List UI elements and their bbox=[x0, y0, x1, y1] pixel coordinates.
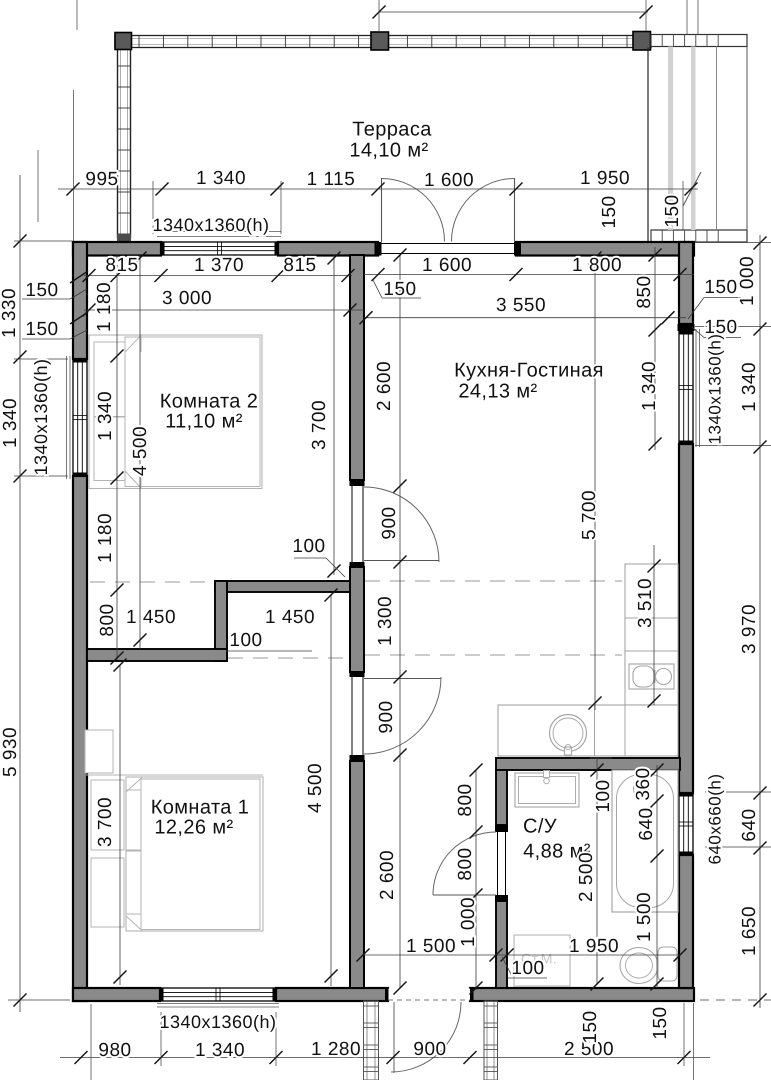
svg-text:1 300: 1 300 bbox=[375, 596, 396, 646]
svg-text:150: 150 bbox=[383, 279, 416, 300]
svg-text:850: 850 bbox=[634, 275, 655, 308]
svg-text:150: 150 bbox=[25, 280, 58, 301]
svg-text:2 600: 2 600 bbox=[377, 850, 398, 900]
svg-text:1 340: 1 340 bbox=[639, 361, 660, 411]
svg-text:1 600: 1 600 bbox=[424, 170, 474, 191]
svg-text:150: 150 bbox=[580, 1010, 601, 1043]
svg-text:3 000: 3 000 bbox=[162, 288, 212, 309]
svg-text:3 700: 3 700 bbox=[309, 400, 330, 450]
svg-text:150: 150 bbox=[599, 195, 620, 228]
svg-text:800: 800 bbox=[455, 847, 476, 880]
svg-text:1340x1360(h): 1340x1360(h) bbox=[152, 215, 269, 235]
svg-text:14,10 м²: 14,10 м² bbox=[349, 139, 428, 161]
svg-text:1 800: 1 800 bbox=[572, 255, 622, 276]
svg-text:3 970: 3 970 bbox=[739, 604, 760, 654]
svg-text:1 500: 1 500 bbox=[634, 892, 655, 942]
svg-text:1 280: 1 280 bbox=[311, 1039, 361, 1060]
svg-text:1 340: 1 340 bbox=[195, 1040, 245, 1061]
svg-text:С/У: С/У bbox=[523, 815, 557, 837]
svg-text:12,26 м²: 12,26 м² bbox=[154, 816, 233, 838]
svg-text:150: 150 bbox=[704, 277, 737, 298]
svg-text:900: 900 bbox=[376, 700, 397, 733]
svg-text:100: 100 bbox=[229, 630, 262, 651]
svg-text:3 550: 3 550 bbox=[496, 295, 546, 316]
svg-text:1 950: 1 950 bbox=[580, 168, 630, 189]
svg-text:3 510: 3 510 bbox=[635, 578, 656, 628]
svg-text:815: 815 bbox=[105, 255, 138, 276]
svg-text:4 500: 4 500 bbox=[305, 763, 326, 813]
svg-text:815: 815 bbox=[283, 255, 316, 276]
svg-text:1 340: 1 340 bbox=[0, 398, 21, 448]
svg-text:Комната 1: Комната 1 bbox=[151, 796, 250, 818]
svg-text:640: 640 bbox=[636, 807, 657, 840]
svg-text:980: 980 bbox=[98, 1040, 131, 1061]
svg-text:100: 100 bbox=[593, 779, 614, 812]
svg-text:Кухня-Гостиная: Кухня-Гостиная bbox=[454, 359, 604, 381]
svg-text:5 700: 5 700 bbox=[579, 490, 600, 540]
svg-text:800: 800 bbox=[97, 603, 118, 636]
svg-text:1 450: 1 450 bbox=[126, 607, 176, 628]
svg-text:1 500: 1 500 bbox=[406, 936, 456, 957]
svg-text:1 340: 1 340 bbox=[95, 391, 116, 441]
svg-text:995: 995 bbox=[85, 169, 118, 190]
svg-text:150: 150 bbox=[650, 1006, 671, 1039]
svg-text:1340x1360(h): 1340x1360(h) bbox=[31, 358, 51, 475]
svg-text:1 370: 1 370 bbox=[194, 255, 244, 276]
svg-text:1 180: 1 180 bbox=[94, 282, 115, 332]
svg-text:1 000: 1 000 bbox=[458, 897, 479, 947]
svg-text:2 500: 2 500 bbox=[576, 852, 597, 902]
svg-text:640: 640 bbox=[739, 808, 760, 841]
svg-text:1 330: 1 330 bbox=[0, 288, 20, 338]
svg-text:900: 900 bbox=[413, 1039, 446, 1060]
svg-text:100: 100 bbox=[511, 958, 544, 979]
svg-text:3 700: 3 700 bbox=[95, 797, 116, 847]
svg-text:1340x1360(h): 1340x1360(h) bbox=[705, 334, 724, 445]
svg-text:2 600: 2 600 bbox=[374, 361, 395, 411]
svg-text:5 930: 5 930 bbox=[0, 727, 21, 777]
svg-text:800: 800 bbox=[455, 783, 476, 816]
svg-text:1 650: 1 650 bbox=[739, 906, 760, 956]
svg-text:100: 100 bbox=[292, 536, 325, 557]
svg-text:900: 900 bbox=[379, 506, 400, 539]
svg-text:150: 150 bbox=[25, 319, 58, 340]
svg-text:1 950: 1 950 bbox=[569, 936, 619, 957]
svg-text:11,10 м²: 11,10 м² bbox=[165, 410, 243, 432]
svg-text:1 600: 1 600 bbox=[422, 255, 472, 276]
svg-text:24,13 м²: 24,13 м² bbox=[458, 380, 537, 402]
svg-text:1 340: 1 340 bbox=[196, 168, 246, 189]
svg-text:1 115: 1 115 bbox=[307, 169, 356, 190]
svg-text:360: 360 bbox=[633, 767, 654, 800]
svg-text:150: 150 bbox=[662, 194, 683, 227]
svg-text:4 500: 4 500 bbox=[130, 426, 151, 476]
svg-text:1340x1360(h): 1340x1360(h) bbox=[159, 1012, 276, 1032]
svg-text:1 000: 1 000 bbox=[737, 256, 758, 306]
svg-text:Терраса: Терраса bbox=[352, 118, 432, 140]
svg-text:Комната 2: Комната 2 bbox=[160, 390, 259, 412]
svg-text:1 180: 1 180 bbox=[95, 513, 116, 563]
svg-text:640x660(h): 640x660(h) bbox=[705, 773, 724, 864]
svg-text:1 450: 1 450 bbox=[265, 607, 315, 628]
svg-text:1 340: 1 340 bbox=[739, 362, 760, 412]
